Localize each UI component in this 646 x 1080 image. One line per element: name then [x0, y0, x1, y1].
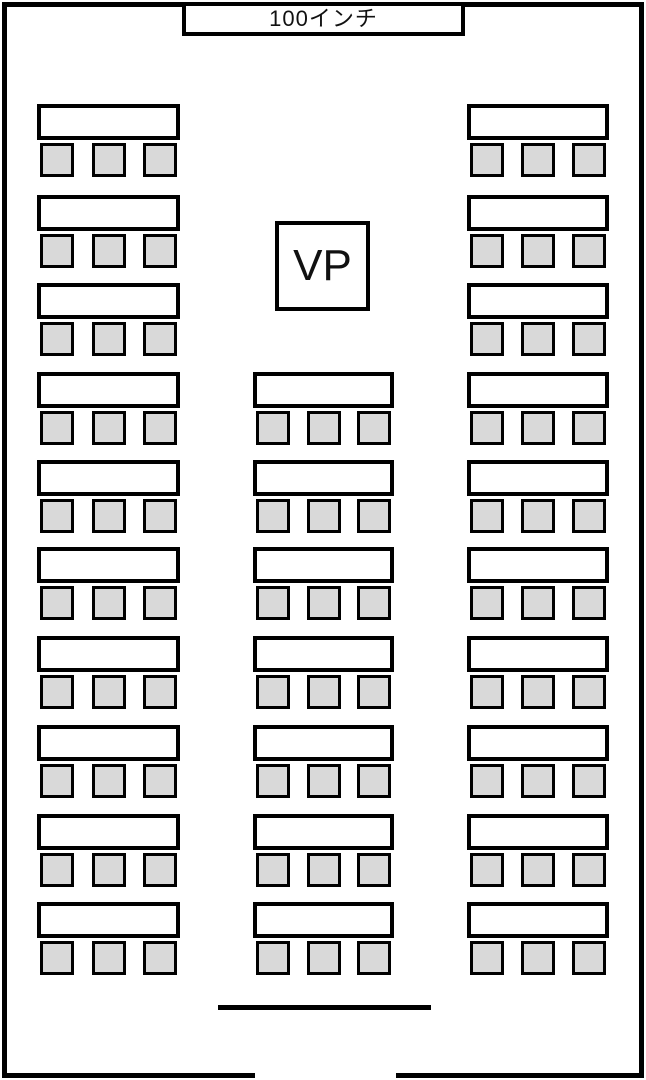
chair: [256, 586, 290, 620]
chair: [572, 143, 606, 177]
wall-bottom-left-segment: [2, 1073, 255, 1078]
entrance-line: [218, 1005, 431, 1010]
table: [37, 814, 180, 850]
chair: [470, 853, 504, 887]
chair: [470, 322, 504, 356]
chair: [40, 234, 74, 268]
chair: [572, 941, 606, 975]
table-cluster-left-4: [37, 372, 180, 445]
table: [37, 372, 180, 408]
chair: [521, 499, 555, 533]
table-cluster-right-9: [467, 814, 609, 887]
chair: [143, 586, 177, 620]
chair: [307, 764, 341, 798]
chair: [572, 499, 606, 533]
table: [467, 636, 609, 672]
chair: [521, 143, 555, 177]
chair: [470, 234, 504, 268]
chair: [92, 499, 126, 533]
chair: [307, 675, 341, 709]
chair-row: [37, 234, 180, 268]
chair: [470, 499, 504, 533]
table: [467, 195, 609, 231]
chair: [357, 941, 391, 975]
chair: [92, 853, 126, 887]
chair: [143, 234, 177, 268]
table: [37, 460, 180, 496]
chair-row: [37, 675, 180, 709]
projector-screen-100inch: 100インチ: [182, 2, 465, 36]
screen-label: 100インチ: [269, 8, 378, 30]
table-cluster-left-6: [37, 547, 180, 620]
table: [467, 725, 609, 761]
chair: [307, 853, 341, 887]
chair-row: [467, 853, 609, 887]
chair-row: [253, 411, 394, 445]
table-cluster-right-7: [467, 636, 609, 709]
table: [253, 902, 394, 938]
chair-row: [253, 499, 394, 533]
table: [37, 104, 180, 140]
chair: [307, 499, 341, 533]
chair: [572, 322, 606, 356]
chair: [307, 941, 341, 975]
chair: [572, 411, 606, 445]
table: [37, 283, 180, 319]
chair: [572, 586, 606, 620]
chair-row: [467, 675, 609, 709]
table-cluster-right-4: [467, 372, 609, 445]
chair-row: [253, 586, 394, 620]
table-cluster-right-2: [467, 195, 609, 268]
chair: [470, 143, 504, 177]
chair: [92, 322, 126, 356]
chair: [521, 675, 555, 709]
chair: [40, 143, 74, 177]
chair: [357, 586, 391, 620]
table-cluster-left-1: [37, 104, 180, 177]
chair: [521, 853, 555, 887]
chair-row: [467, 499, 609, 533]
chair: [256, 411, 290, 445]
table-cluster-left-8: [37, 725, 180, 798]
table-cluster-left-9: [37, 814, 180, 887]
table: [37, 636, 180, 672]
chair-row: [37, 499, 180, 533]
chair: [92, 675, 126, 709]
chair-row: [253, 675, 394, 709]
chair: [521, 322, 555, 356]
chair: [256, 499, 290, 533]
chair: [256, 941, 290, 975]
chair-row: [467, 411, 609, 445]
chair: [357, 499, 391, 533]
projector-label: VP: [293, 244, 352, 288]
chair-row: [37, 586, 180, 620]
chair-row: [467, 322, 609, 356]
table-cluster-left-10: [37, 902, 180, 975]
table: [253, 547, 394, 583]
chair-row: [467, 941, 609, 975]
table: [37, 725, 180, 761]
table: [253, 460, 394, 496]
chair: [143, 853, 177, 887]
chair: [307, 586, 341, 620]
chair: [572, 853, 606, 887]
chair-row: [467, 234, 609, 268]
table-cluster-center-4: [253, 636, 394, 709]
chair: [256, 764, 290, 798]
chair: [92, 764, 126, 798]
wall-bottom-right-segment: [396, 1073, 644, 1078]
table-cluster-center-1: [253, 372, 394, 445]
chair: [40, 764, 74, 798]
table: [467, 547, 609, 583]
chair: [143, 143, 177, 177]
table: [467, 814, 609, 850]
chair: [521, 941, 555, 975]
chair: [92, 143, 126, 177]
chair-row: [37, 764, 180, 798]
chair-row: [37, 853, 180, 887]
table-cluster-center-3: [253, 547, 394, 620]
chair: [470, 411, 504, 445]
table: [37, 547, 180, 583]
chair: [256, 675, 290, 709]
chair: [143, 675, 177, 709]
table-cluster-center-5: [253, 725, 394, 798]
table-cluster-left-7: [37, 636, 180, 709]
chair: [521, 586, 555, 620]
table: [253, 372, 394, 408]
table-cluster-right-5: [467, 460, 609, 533]
chair: [40, 941, 74, 975]
chair: [307, 411, 341, 445]
chair: [40, 411, 74, 445]
wall-right: [639, 2, 644, 1078]
chair: [521, 234, 555, 268]
chair: [92, 411, 126, 445]
chair: [40, 853, 74, 887]
table-cluster-right-3: [467, 283, 609, 356]
table: [253, 636, 394, 672]
table-cluster-left-5: [37, 460, 180, 533]
chair: [470, 586, 504, 620]
table: [253, 814, 394, 850]
chair: [40, 675, 74, 709]
table-cluster-center-7: [253, 902, 394, 975]
chair: [92, 941, 126, 975]
chair: [40, 586, 74, 620]
table: [467, 372, 609, 408]
table-cluster-right-6: [467, 547, 609, 620]
chair-row: [37, 322, 180, 356]
table-cluster-left-2: [37, 195, 180, 268]
table: [253, 725, 394, 761]
chair-row: [467, 764, 609, 798]
chair: [470, 675, 504, 709]
chair: [143, 322, 177, 356]
chair: [521, 764, 555, 798]
chair: [92, 234, 126, 268]
chair-row: [37, 143, 180, 177]
chair: [92, 586, 126, 620]
table-cluster-left-3: [37, 283, 180, 356]
chair: [40, 499, 74, 533]
chair-row: [37, 941, 180, 975]
table-cluster-center-6: [253, 814, 394, 887]
chair-row: [253, 764, 394, 798]
chair: [470, 764, 504, 798]
chair: [572, 675, 606, 709]
table: [37, 195, 180, 231]
chair: [572, 764, 606, 798]
chair-row: [467, 586, 609, 620]
wall-left: [2, 2, 7, 1078]
chair: [470, 941, 504, 975]
chair: [357, 675, 391, 709]
chair: [357, 411, 391, 445]
chair: [256, 853, 290, 887]
table: [37, 902, 180, 938]
chair-row: [253, 853, 394, 887]
table: [467, 283, 609, 319]
table-cluster-right-10: [467, 902, 609, 975]
chair: [572, 234, 606, 268]
chair: [143, 764, 177, 798]
table: [467, 460, 609, 496]
chair: [143, 411, 177, 445]
chair: [143, 941, 177, 975]
table: [467, 902, 609, 938]
table-cluster-right-1: [467, 104, 609, 177]
table: [467, 104, 609, 140]
video-projector-box: VP: [275, 221, 370, 311]
chair-row: [37, 411, 180, 445]
chair-row: [467, 143, 609, 177]
table-cluster-center-2: [253, 460, 394, 533]
chair-row: [253, 941, 394, 975]
chair: [143, 499, 177, 533]
chair: [357, 764, 391, 798]
chair: [357, 853, 391, 887]
chair: [521, 411, 555, 445]
chair: [40, 322, 74, 356]
table-cluster-right-8: [467, 725, 609, 798]
